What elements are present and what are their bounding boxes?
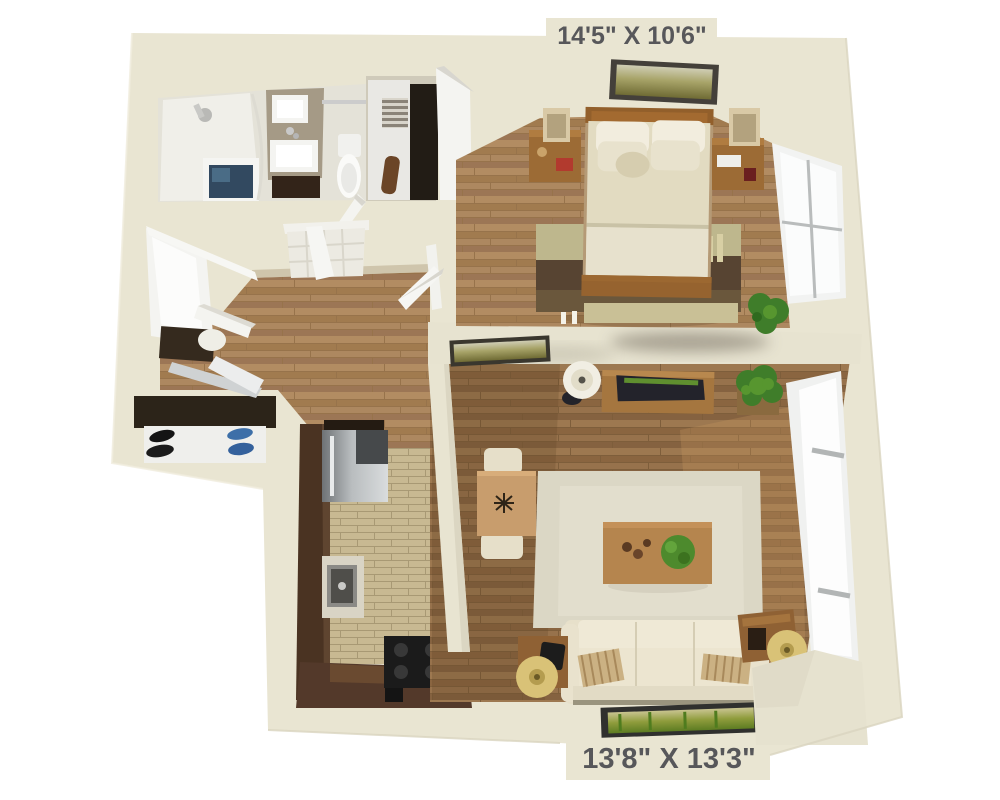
svg-text:13'8" X 13'3": 13'8" X 13'3" bbox=[582, 743, 756, 775]
svg-text:14'5" X 10'6": 14'5" X 10'6" bbox=[557, 22, 707, 50]
